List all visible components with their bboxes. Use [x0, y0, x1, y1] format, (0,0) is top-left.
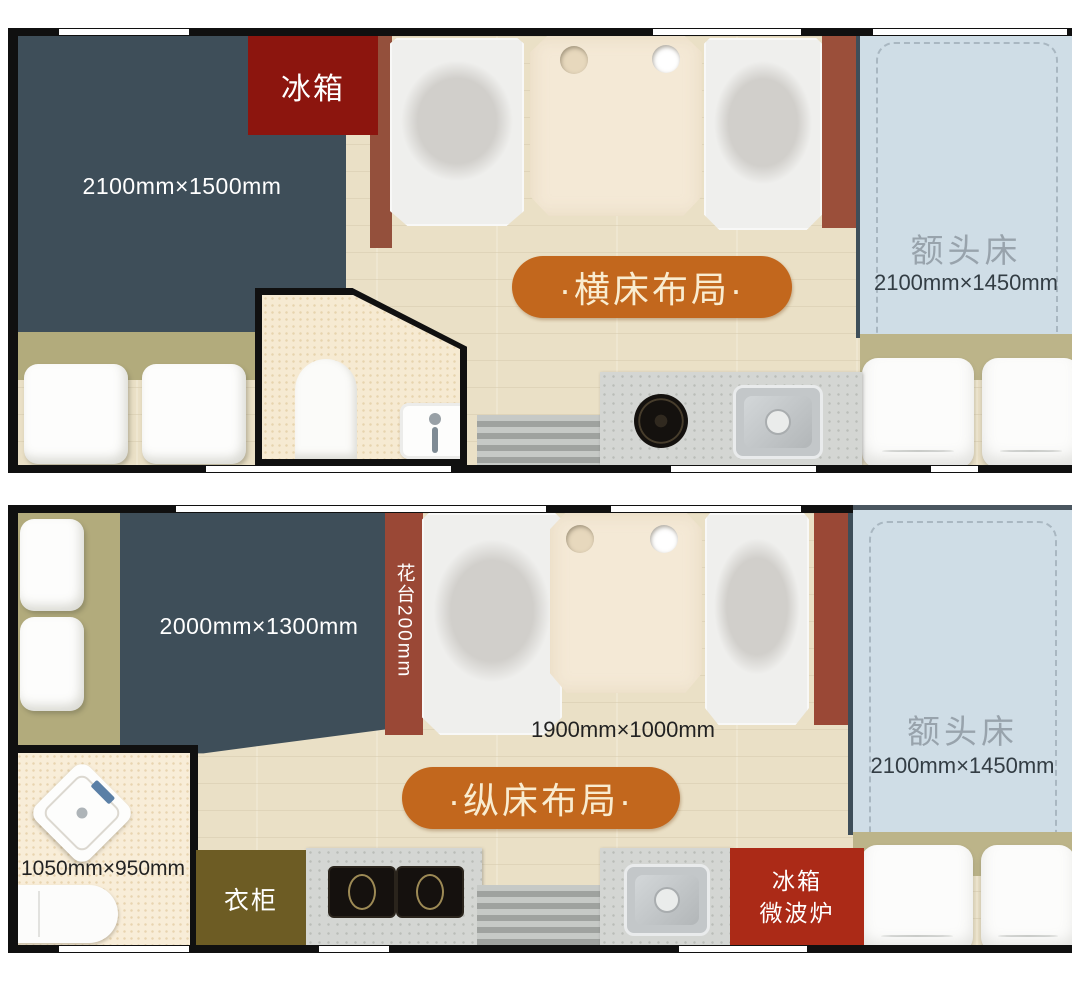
window [58, 28, 190, 36]
stove-burner-icon [398, 868, 462, 916]
layout-badge: ·纵床布局· [402, 767, 680, 829]
layout-badge: ·横床布局· [512, 256, 792, 318]
dinette-bench-right [704, 38, 822, 230]
window [930, 465, 979, 473]
overhead-bed-outline [869, 521, 1057, 843]
wall-bottom [8, 465, 1072, 473]
flower-stand-label: 花台200mm [391, 563, 418, 678]
cup-holder-icon [652, 45, 680, 73]
rear-seat-cushion [24, 364, 128, 464]
window [610, 505, 802, 513]
cab-seat [982, 358, 1072, 468]
window [670, 465, 817, 473]
cup-holder-icon [560, 46, 588, 74]
window [652, 28, 802, 36]
toilet-icon [16, 885, 118, 943]
backrest-strip [814, 513, 848, 725]
fridge-label: 冰箱 [772, 866, 822, 897]
rear-bed-dimension: 2100mm×1500mm [83, 173, 282, 200]
wall-left [8, 505, 18, 953]
cab-seat [861, 845, 973, 953]
rear-seat-cushion [20, 519, 84, 611]
seat-stitch [882, 450, 954, 452]
rear-bed: 2000mm×1300mm [120, 513, 398, 757]
sink-counter [600, 848, 732, 947]
wardrobe: 衣柜 [196, 850, 306, 947]
window [205, 465, 452, 473]
window [678, 945, 808, 953]
bathroom-dimension: 1050mm×950mm [16, 857, 190, 881]
bathroom-sink-icon [28, 759, 135, 866]
shower-toilet-icon [295, 359, 357, 459]
backrest-strip [822, 36, 856, 228]
seat-stitch [1000, 450, 1063, 452]
microwave-label: 微波炉 [760, 898, 835, 929]
overhead-bed-dimension: 2100mm×1450mm [853, 753, 1072, 779]
window [318, 945, 390, 953]
rear-seat-cushion [142, 364, 246, 464]
bathroom-sink-icon [400, 403, 470, 459]
seat-stitch [998, 935, 1058, 937]
window [175, 505, 547, 513]
bathroom: 1050mm×950mm [8, 745, 198, 953]
wall-left [8, 28, 18, 473]
overhead-bed-label: 额头床 [853, 705, 1072, 753]
cab-overhead-bed: 额头床 2100mm×1450mm [853, 505, 1072, 835]
cab-seat [862, 358, 974, 468]
stove-burner-icon [634, 394, 688, 448]
rear-bed-dimension: 2000mm×1300mm [160, 613, 359, 640]
flower-stand-strip: 花台200mm [385, 507, 423, 735]
cab-overhead-bed: 额头床 2100mm×1450mm [860, 28, 1072, 334]
kitchen-sink-icon [624, 864, 710, 936]
kitchen-sink-icon [733, 385, 823, 459]
layout-badge-label: ·纵床布局· [448, 772, 634, 824]
layout-badge-label: ·横床布局· [559, 261, 745, 313]
bathroom-floor: 1050mm×950mm [16, 753, 190, 945]
dinette-table [530, 36, 702, 216]
window [58, 945, 190, 953]
stove-burner-icon [330, 868, 394, 916]
fridge-microwave-block: 冰箱 微波炉 [730, 848, 864, 947]
overhead-bed-dimension: 2100mm×1450mm [860, 270, 1072, 296]
dinette-table [550, 513, 702, 693]
wardrobe-label: 衣柜 [224, 881, 278, 917]
longitudinal-bed-left [422, 513, 562, 735]
entry-steps [477, 885, 602, 947]
floorplan-longitudinal-bed: 2000mm×1300mm 花台200mm 1900mm×1000mm 额头床 … [8, 505, 1072, 953]
cab-seat [981, 845, 1072, 953]
stove-counter [306, 848, 482, 947]
seat-stitch [881, 935, 953, 937]
windshield-window [872, 28, 1068, 36]
cup-holder-icon [566, 525, 594, 553]
fridge-label: 冰箱 [281, 64, 345, 108]
overhead-bed-outline [876, 42, 1058, 344]
overhead-bed-label: 额头床 [860, 224, 1072, 272]
dinette-bench-left [390, 38, 524, 226]
cab-front-edge [853, 505, 1072, 510]
cup-holder-icon [650, 525, 678, 553]
floorplan-horizontal-bed: 2100mm×1500mm 冰箱 额头床 2100mm×1450mm [8, 28, 1072, 473]
kitchen-counter [600, 372, 862, 465]
fridge-block: 冰箱 [248, 36, 378, 135]
longitudinal-bed-right [705, 513, 809, 725]
entry-steps [477, 415, 603, 465]
rear-seat-cushion [20, 617, 84, 711]
side-bed-dimension: 1900mm×1000mm [523, 717, 723, 743]
